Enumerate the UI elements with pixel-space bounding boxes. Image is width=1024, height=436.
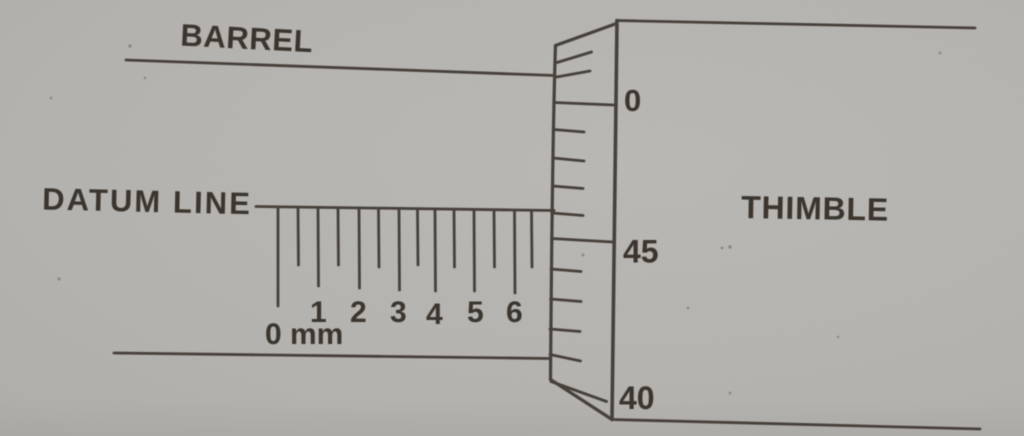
svg-text:0: 0: [624, 83, 641, 118]
svg-text:5: 5: [467, 296, 484, 329]
svg-text:40: 40: [619, 380, 655, 416]
svg-text:THIMBLE: THIMBLE: [741, 189, 889, 228]
svg-text:0: 0: [265, 318, 282, 351]
svg-text:mm: mm: [290, 318, 343, 351]
svg-text:DATUM LINE: DATUM LINE: [42, 182, 253, 222]
svg-text:4: 4: [426, 298, 443, 331]
svg-text:3: 3: [390, 296, 407, 329]
svg-text:6: 6: [506, 296, 523, 329]
svg-text:45: 45: [623, 234, 659, 270]
svg-text:BARREL: BARREL: [180, 18, 314, 60]
svg-text:2: 2: [350, 296, 367, 329]
